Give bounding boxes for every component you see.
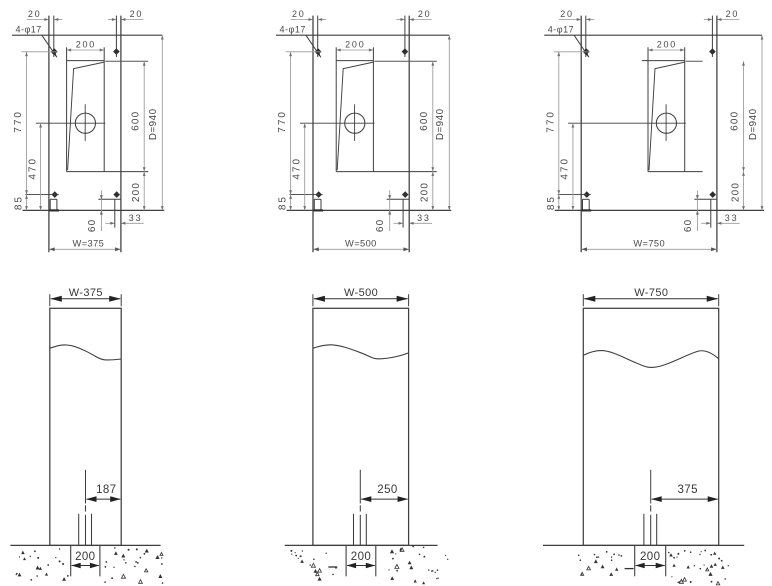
svg-text:W-500: W-500 xyxy=(344,287,378,299)
svg-text:20: 20 xyxy=(560,9,574,19)
svg-text:20: 20 xyxy=(130,9,144,19)
svg-text:W-375: W-375 xyxy=(69,287,103,299)
svg-text:60: 60 xyxy=(683,219,694,233)
svg-text:20: 20 xyxy=(28,9,42,19)
svg-text:85: 85 xyxy=(546,195,557,210)
svg-text:770: 770 xyxy=(13,110,24,133)
svg-text:D=940: D=940 xyxy=(748,108,759,140)
svg-text:770: 770 xyxy=(277,110,288,133)
svg-text:200: 200 xyxy=(420,182,431,202)
svg-text:20: 20 xyxy=(418,9,432,19)
svg-text:770: 770 xyxy=(545,110,556,133)
svg-text:187: 187 xyxy=(96,484,116,496)
svg-text:W=750: W=750 xyxy=(633,238,665,248)
svg-text:200: 200 xyxy=(345,39,365,49)
svg-text:200: 200 xyxy=(640,551,660,563)
svg-text:60: 60 xyxy=(87,219,98,233)
svg-text:200: 200 xyxy=(351,551,371,563)
svg-text:D=940: D=940 xyxy=(148,108,159,140)
svg-text:W-750: W-750 xyxy=(634,287,668,299)
svg-text:85: 85 xyxy=(278,195,289,210)
svg-text:375: 375 xyxy=(678,484,698,496)
svg-text:200: 200 xyxy=(76,39,96,49)
svg-text:470: 470 xyxy=(560,157,571,180)
svg-text:W=500: W=500 xyxy=(345,238,377,248)
svg-text:200: 200 xyxy=(730,182,741,202)
svg-text:4-φ17: 4-φ17 xyxy=(548,24,574,34)
svg-text:33: 33 xyxy=(129,213,143,223)
svg-text:4-φ17: 4-φ17 xyxy=(280,24,306,34)
svg-text:600: 600 xyxy=(130,111,141,131)
svg-text:470: 470 xyxy=(292,157,303,180)
svg-text:W=375: W=375 xyxy=(73,238,105,248)
svg-text:33: 33 xyxy=(417,213,431,223)
svg-text:470: 470 xyxy=(27,157,38,180)
svg-text:60: 60 xyxy=(375,219,386,233)
svg-text:20: 20 xyxy=(292,9,306,19)
svg-text:33: 33 xyxy=(725,213,739,223)
svg-text:4-φ17: 4-φ17 xyxy=(15,24,41,34)
svg-text:250: 250 xyxy=(377,484,397,496)
svg-text:20: 20 xyxy=(726,9,740,19)
svg-text:600: 600 xyxy=(730,111,741,131)
svg-text:200: 200 xyxy=(75,551,95,563)
svg-text:200: 200 xyxy=(131,182,142,202)
svg-text:85: 85 xyxy=(14,195,25,210)
svg-text:200: 200 xyxy=(657,39,677,49)
svg-text:600: 600 xyxy=(419,111,430,131)
svg-text:D=940: D=940 xyxy=(435,108,446,140)
